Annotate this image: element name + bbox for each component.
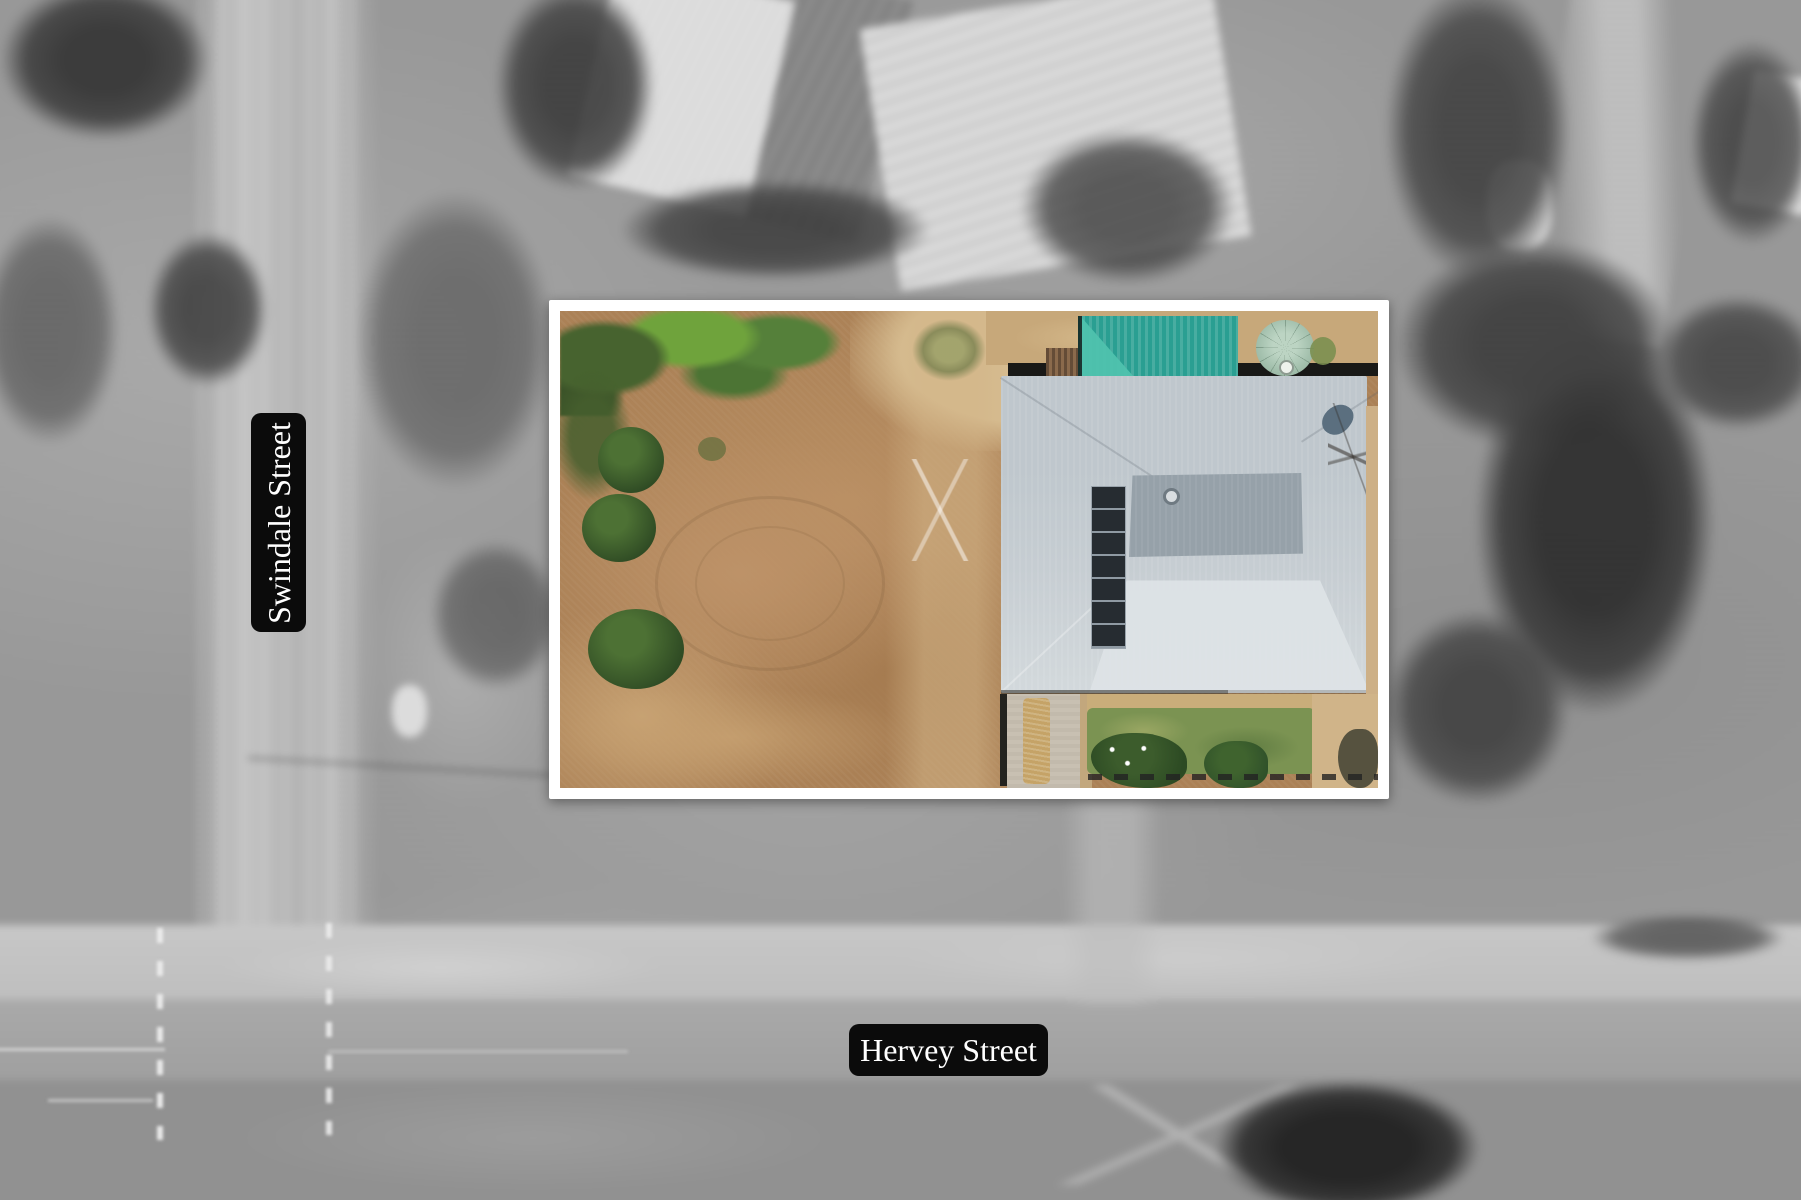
- street-label-hervey: Hervey Street: [849, 1024, 1048, 1076]
- property-highlight-frame: [549, 300, 1389, 799]
- solar-panel-array: [1091, 486, 1126, 649]
- hay-strip: [1023, 698, 1050, 784]
- road-edge-line-right: [328, 1050, 628, 1053]
- roof-upper-section: [1129, 473, 1303, 557]
- lane-dash-line-right: [326, 923, 332, 1135]
- clothesline: [888, 459, 992, 561]
- side-dirt-strip: [1366, 406, 1378, 741]
- road-edge-line-left: [0, 1048, 165, 1051]
- street-label-hervey-text: Hervey Street: [860, 1034, 1037, 1066]
- mow-ring-inner: [695, 526, 845, 641]
- road-edge-line-lower: [48, 1099, 153, 1102]
- bush-left-1: [598, 427, 664, 493]
- lawn-bush-right: [1204, 741, 1268, 788]
- olive-shrub: [912, 319, 986, 381]
- side-fence: [1000, 694, 1007, 786]
- front-fence: [1088, 774, 1378, 780]
- bush-left-3: [588, 609, 684, 689]
- shrub-by-tank: [1310, 337, 1336, 365]
- aerial-property-map: Swindale Street Hervey Street: [0, 0, 1801, 1200]
- property-aerial-photo: [560, 311, 1378, 788]
- roof-vent: [1163, 488, 1180, 505]
- lane-dash-line-left: [157, 928, 163, 1140]
- bush-left-2: [582, 494, 656, 562]
- dry-shrub: [698, 437, 726, 461]
- water-tank-cap: [1279, 360, 1294, 375]
- street-label-swindale-text: Swindale Street: [263, 422, 295, 624]
- street-label-swindale: Swindale Street: [251, 413, 306, 632]
- dry-grass-bottom: [560, 686, 905, 788]
